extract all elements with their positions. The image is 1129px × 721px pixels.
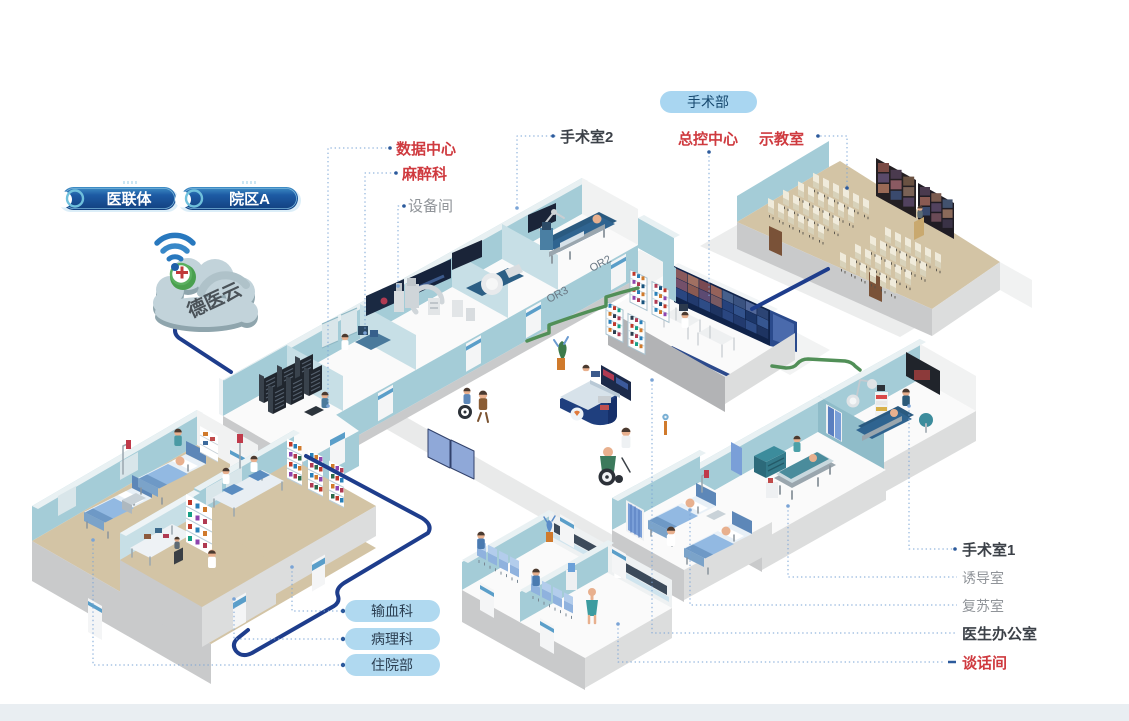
svg-text:示教室: 示教室 — [759, 130, 804, 148]
svg-text:总控中心: 总控中心 — [678, 130, 738, 148]
svg-text:医生办公室: 医生办公室 — [962, 625, 1037, 643]
svg-text:设备间: 设备间 — [408, 198, 453, 215]
svg-text:谈话间: 谈话间 — [962, 654, 1007, 672]
svg-text:复苏室: 复苏室 — [962, 598, 1004, 614]
svg-text:麻醉科: 麻醉科 — [401, 165, 447, 183]
svg-text:院区A: 院区A — [229, 190, 270, 208]
svg-text:住院部: 住院部 — [371, 657, 413, 673]
svg-text:输血科: 输血科 — [371, 603, 413, 619]
svg-text:医联体: 医联体 — [106, 190, 152, 208]
svg-text:手术室1: 手术室1 — [962, 541, 1015, 559]
svg-text:病理科: 病理科 — [371, 631, 413, 647]
svg-text:数据中心: 数据中心 — [396, 140, 456, 158]
svg-text:手术部: 手术部 — [687, 94, 729, 110]
svg-text:手术室2: 手术室2 — [560, 128, 613, 146]
svg-text:诱导室: 诱导室 — [962, 570, 1004, 586]
